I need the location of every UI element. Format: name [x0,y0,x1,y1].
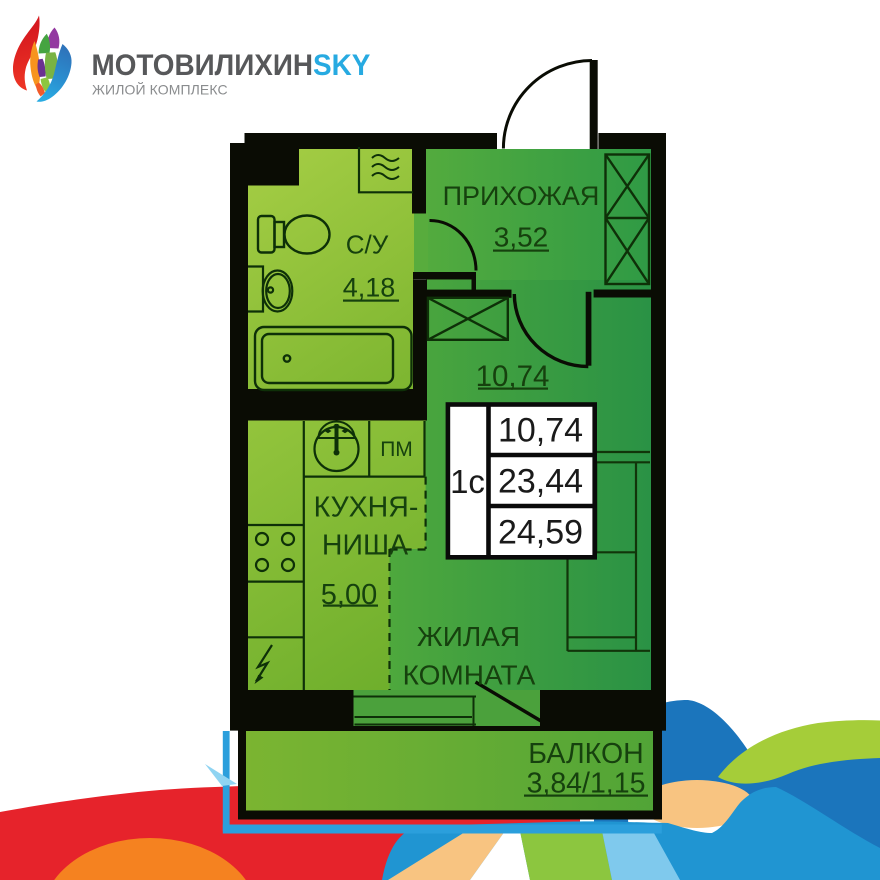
svg-text:БАЛКОН: БАЛКОН [528,738,643,770]
svg-text:ПРИХОЖАЯ: ПРИХОЖАЯ [443,181,600,211]
svg-text:10,74: 10,74 [498,412,583,450]
svg-text:3,52: 3,52 [494,222,549,253]
svg-text:4,18: 4,18 [343,273,396,303]
svg-text:1с: 1с [450,463,485,500]
svg-text:ЖИЛОЙ КОМПЛЕКС: ЖИЛОЙ КОМПЛЕКС [92,81,228,98]
svg-text:МОТОВИЛИХИНSKY: МОТОВИЛИХИНSKY [92,49,371,82]
svg-text:КОМНАТА: КОМНАТА [403,659,536,690]
svg-text:ЖИЛАЯ: ЖИЛАЯ [417,621,520,652]
svg-text:С/У: С/У [346,229,389,259]
svg-text:ПМ: ПМ [380,438,413,461]
svg-text:23,44: 23,44 [498,463,583,501]
svg-text:24,59: 24,59 [498,514,583,552]
svg-text:НИША: НИША [322,530,408,562]
svg-text:КУХНЯ-: КУХНЯ- [314,492,419,524]
